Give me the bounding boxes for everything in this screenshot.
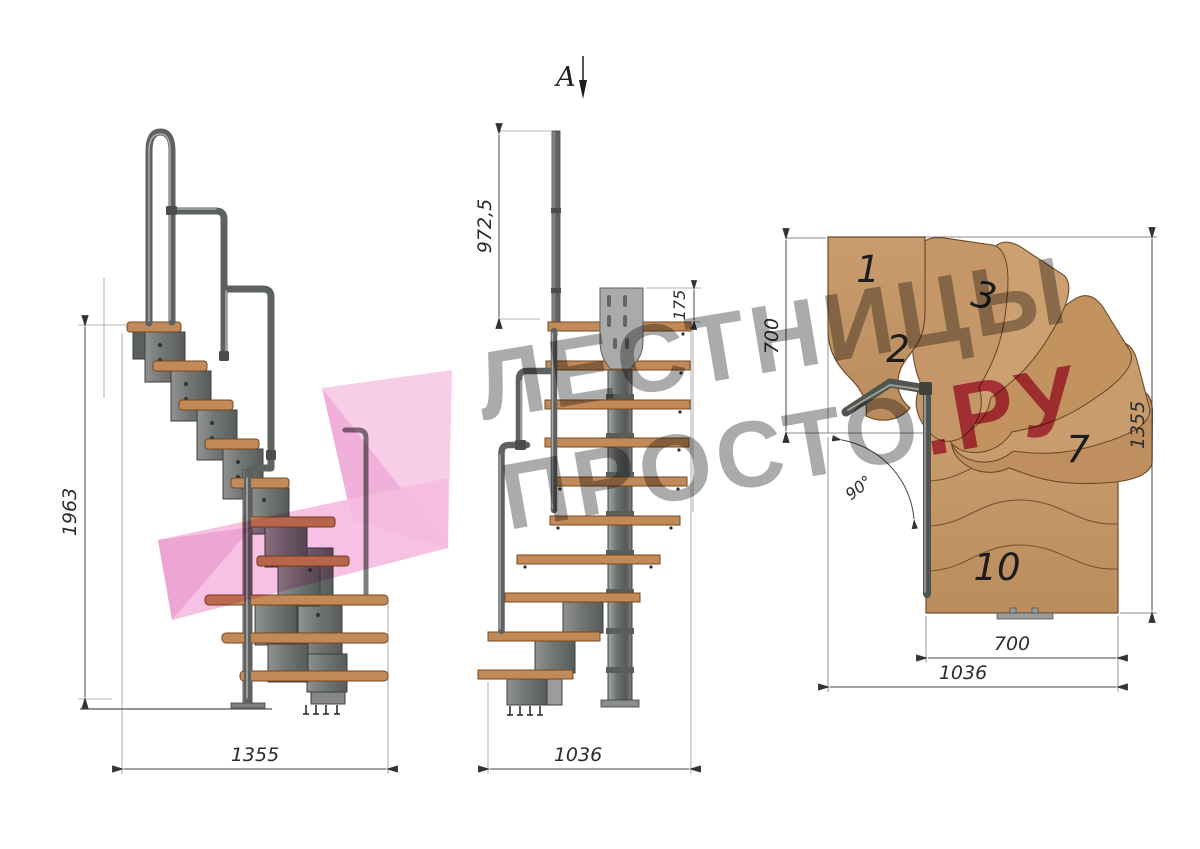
side-height-dimension: 1963: [59, 488, 81, 536]
plan-width-dimension: 1036: [939, 662, 987, 684]
side-width-dimension: 1355: [231, 744, 279, 766]
front-width-dimension: 1036: [554, 744, 602, 766]
staircase-drawing: 1963 1355 А: [0, 0, 1200, 849]
side-step-modules: [133, 331, 320, 682]
technical-drawing-page: 1963 1355 А: [0, 0, 1200, 849]
post-joint: [551, 208, 561, 213]
front-lower-modules: [507, 601, 603, 705]
plan-tread-width-dimension: 700: [994, 633, 1030, 655]
front-column-base-plate: [601, 700, 639, 707]
post-joint: [551, 288, 561, 293]
tread-number-10: 10: [973, 546, 1020, 589]
plan-total-dimension: 1355: [1127, 401, 1149, 449]
section-marker: А: [554, 56, 587, 99]
front-anchor-bolts: [507, 706, 543, 715]
section-label: А: [554, 62, 576, 93]
side-newel-foot: [231, 703, 265, 708]
section-arrow-icon: [579, 80, 587, 99]
front-rail-height-dimension: 972,5: [474, 199, 496, 253]
side-column-anchor-bolts: [303, 705, 340, 714]
front-rail-post-upper: [552, 131, 560, 324]
